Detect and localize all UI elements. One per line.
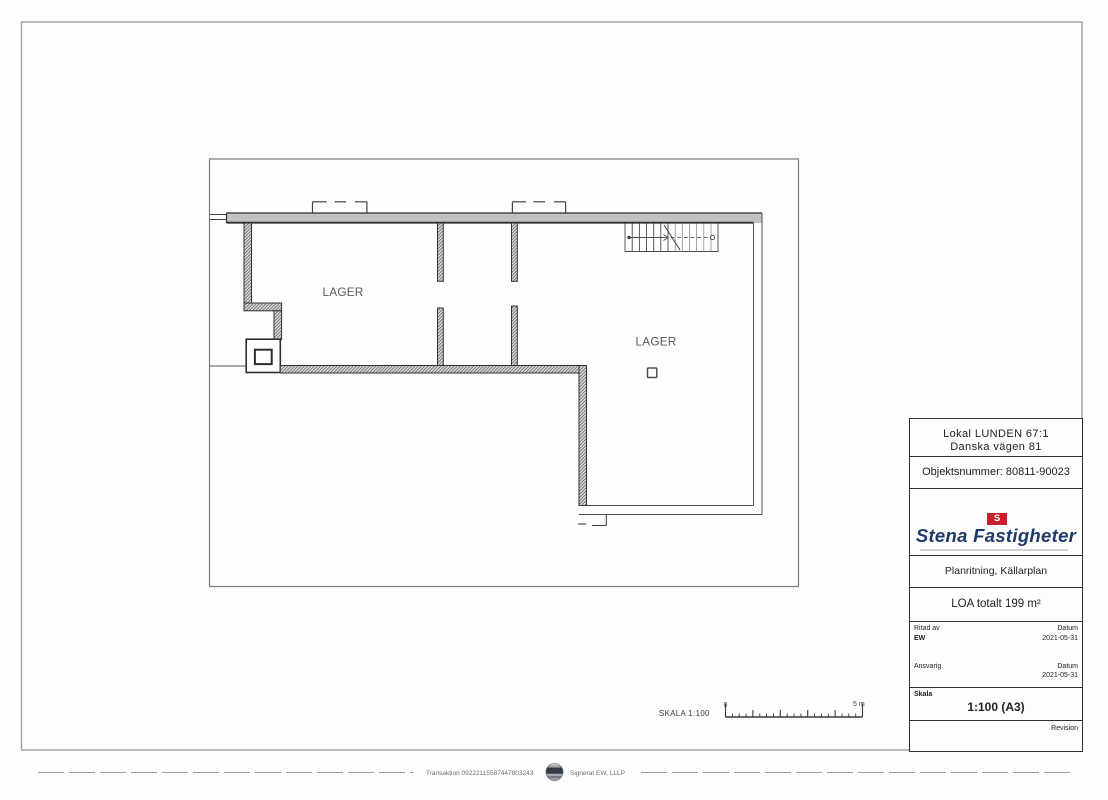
svg-text:SKALA 1:100: SKALA 1:100 bbox=[659, 709, 710, 718]
svg-text:Transaktion 092221155874478032: Transaktion 09222115587447803243 bbox=[426, 770, 534, 777]
svg-text:5 m: 5 m bbox=[853, 701, 865, 708]
svg-text:0: 0 bbox=[724, 702, 728, 709]
svg-text:LAGER: LAGER bbox=[636, 335, 677, 349]
svg-text:Signerat EW, LLLP: Signerat EW, LLLP bbox=[570, 770, 625, 777]
svg-text:LAGER: LAGER bbox=[323, 285, 364, 299]
